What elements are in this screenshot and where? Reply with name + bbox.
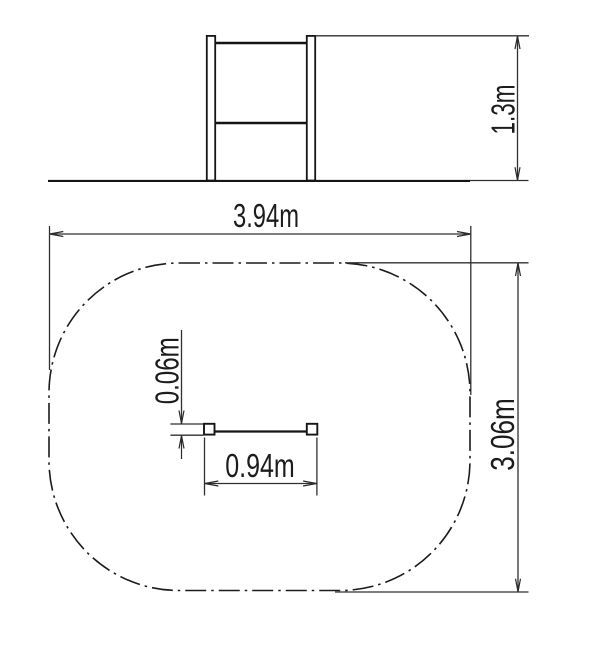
svg-text:0.94m: 0.94m bbox=[225, 447, 295, 484]
svg-text:3.94m: 3.94m bbox=[233, 197, 299, 234]
svg-text:3.06m: 3.06m bbox=[484, 398, 521, 471]
svg-text:1.3m: 1.3m bbox=[485, 85, 522, 135]
svg-text:0.06m: 0.06m bbox=[148, 337, 185, 404]
